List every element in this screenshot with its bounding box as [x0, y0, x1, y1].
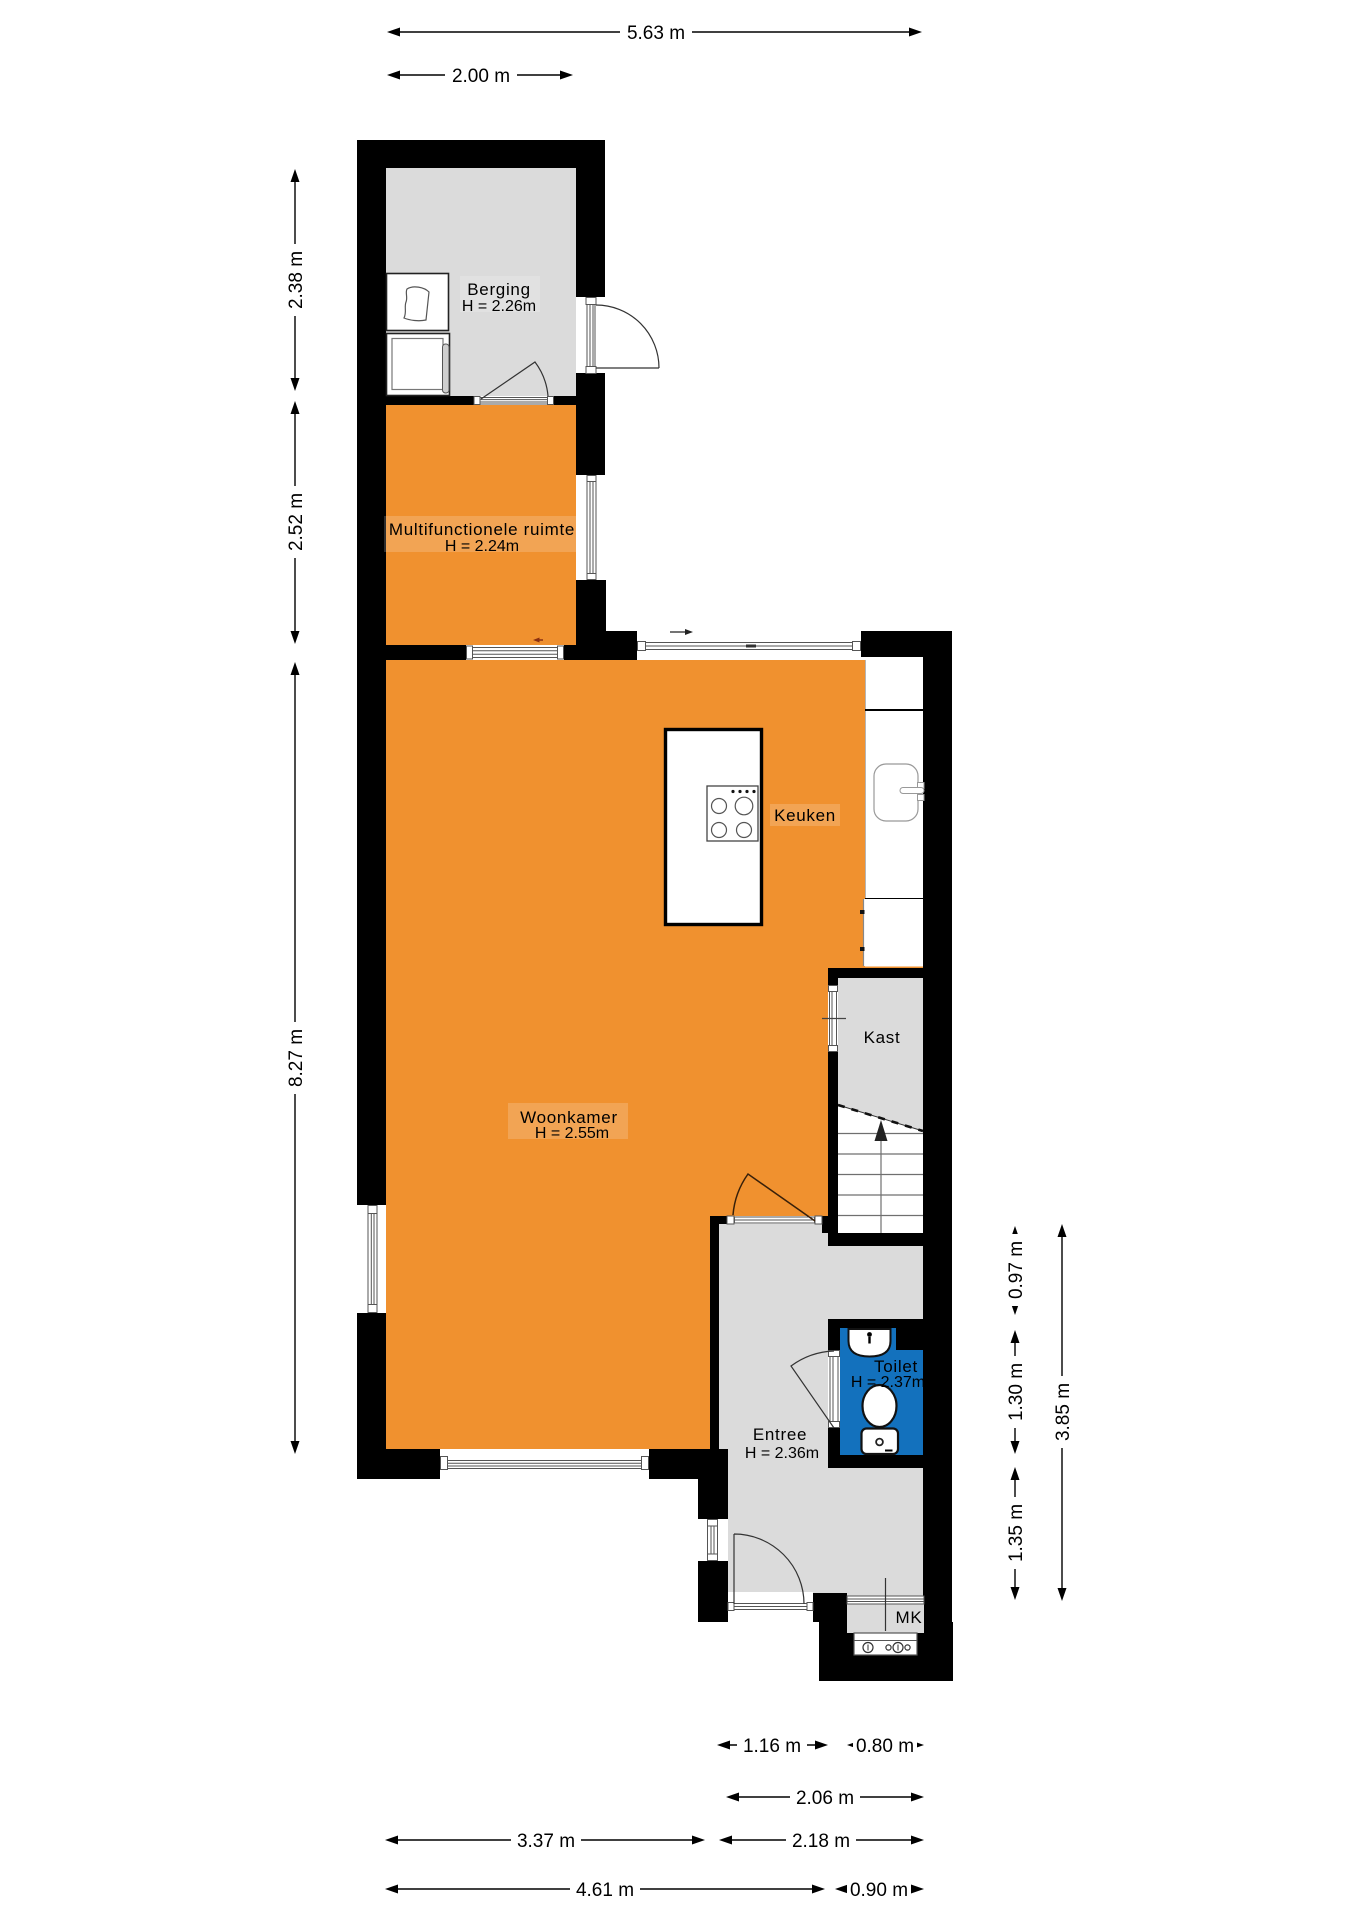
svg-text:4.61 m: 4.61 m	[576, 1880, 634, 1901]
svg-text:2.18 m: 2.18 m	[792, 1831, 850, 1852]
svg-text:0.90 m: 0.90 m	[850, 1880, 908, 1901]
svg-text:Berging: Berging	[467, 280, 531, 299]
svg-text:3.85 m: 3.85 m	[1053, 1383, 1074, 1441]
svg-text:Keuken: Keuken	[774, 806, 836, 825]
svg-text:H = 2.26m: H = 2.26m	[462, 298, 536, 315]
svg-text:1.30 m: 1.30 m	[1006, 1363, 1027, 1421]
svg-text:H = 2.36m: H = 2.36m	[745, 1445, 819, 1462]
svg-text:3.37 m: 3.37 m	[517, 1831, 575, 1852]
svg-text:2.06 m: 2.06 m	[796, 1788, 854, 1809]
svg-text:5.63 m: 5.63 m	[627, 23, 685, 44]
svg-text:2.00 m: 2.00 m	[452, 66, 510, 87]
svg-text:1.16 m: 1.16 m	[743, 1736, 801, 1757]
svg-text:2.38 m: 2.38 m	[286, 251, 307, 309]
svg-text:0.80 m: 0.80 m	[856, 1736, 914, 1757]
svg-text:8.27 m: 8.27 m	[286, 1029, 307, 1087]
svg-text:0.97 m: 0.97 m	[1006, 1241, 1027, 1299]
svg-text:Entree: Entree	[753, 1425, 807, 1444]
svg-text:1.35 m: 1.35 m	[1006, 1504, 1027, 1562]
svg-text:MK: MK	[896, 1608, 923, 1627]
svg-text:Kast: Kast	[864, 1028, 901, 1047]
svg-text:Multifunctionele ruimte: Multifunctionele ruimte	[389, 520, 575, 539]
svg-text:H = 2.55m: H = 2.55m	[535, 1125, 609, 1142]
svg-text:2.52 m: 2.52 m	[286, 493, 307, 551]
svg-text:H = 2.24m: H = 2.24m	[445, 538, 519, 555]
svg-text:H = 2.37m: H = 2.37m	[851, 1374, 925, 1391]
